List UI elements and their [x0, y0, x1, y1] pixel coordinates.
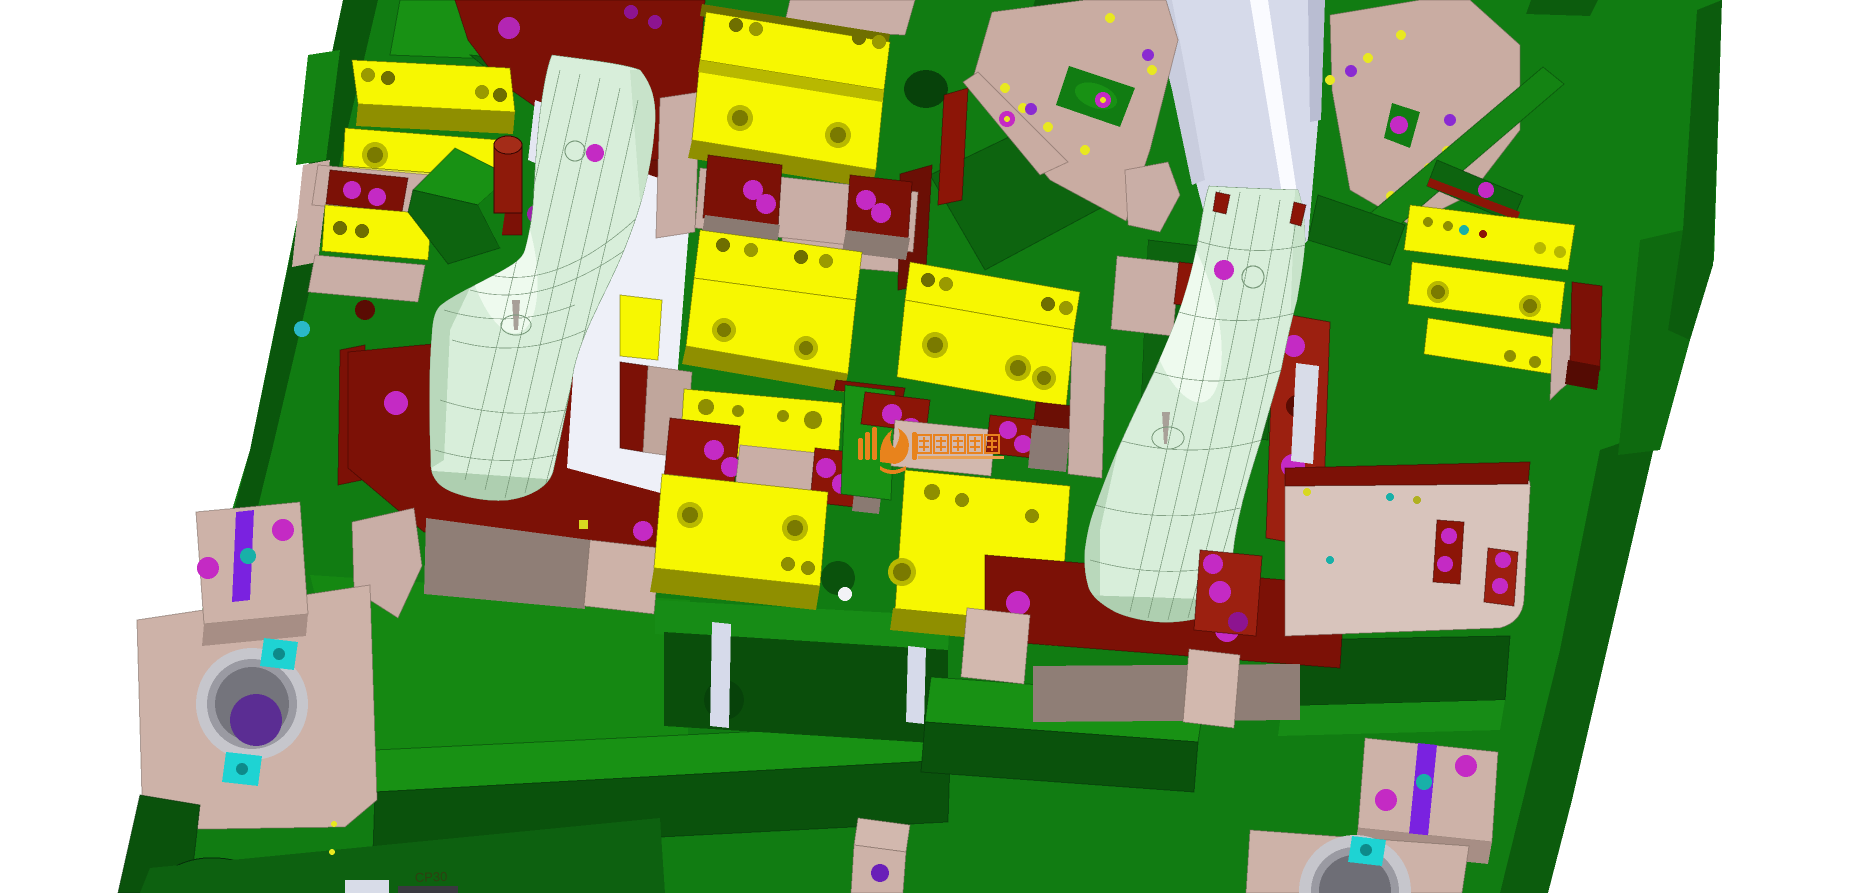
svg-text:CP30: CP30	[415, 869, 448, 885]
